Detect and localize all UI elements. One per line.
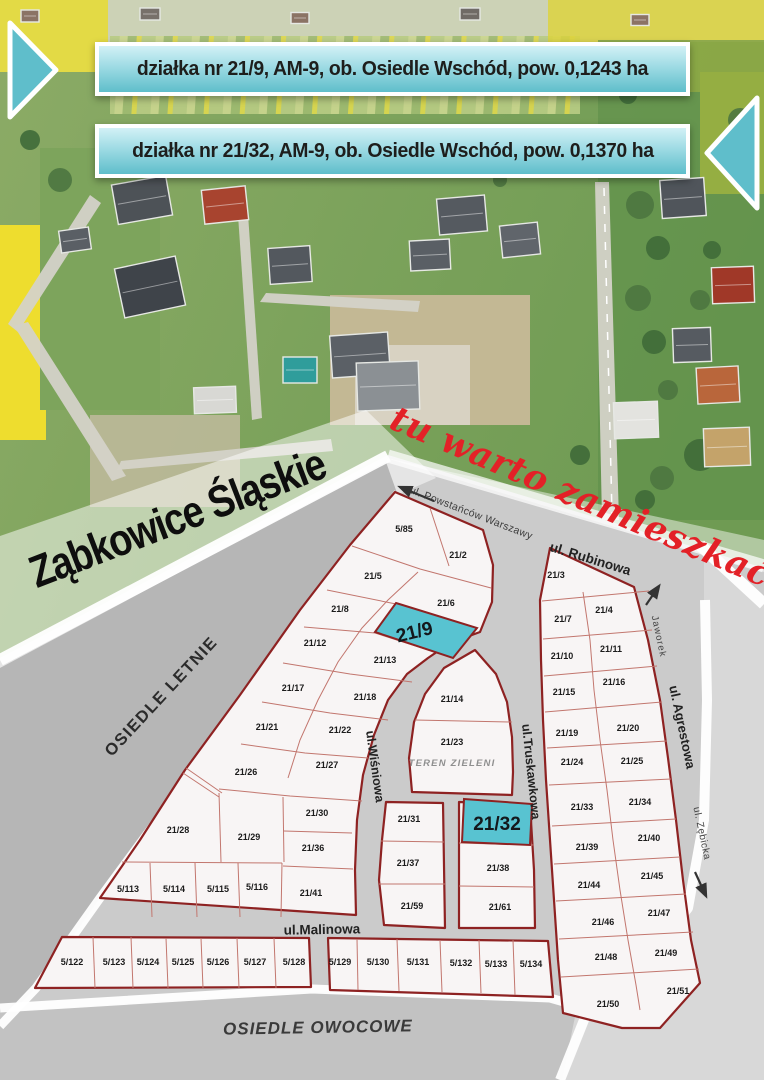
area-label: OSIEDLE OWOCOWE [223,1016,413,1038]
parcel-label: 21/44 [578,880,601,890]
parcel-label: 21/10 [551,651,574,661]
parcel-label: 21/45 [641,871,664,881]
parcel-label: 5/116 [246,882,268,892]
tree [642,330,666,354]
banner-parcel-21-32: działka nr 21/32, AM-9, ob. Osiedle Wsch… [95,124,690,178]
parcel-label: 21/23 [441,737,464,747]
parcel-label: 5/127 [244,957,267,967]
house [499,222,540,258]
parcel-label: 5/126 [207,957,230,967]
tree [646,236,670,260]
parcel-label: 21/46 [592,917,615,927]
parcel-label: 5/115 [207,884,229,894]
banner-parcel-21-9: działka nr 21/9, AM-9, ob. Osiedle Wschó… [95,42,690,96]
parcel-label: 21/15 [553,687,576,697]
house [111,176,172,225]
parcel-label: 21/24 [561,757,584,767]
parcel-label: 21/13 [374,655,397,665]
tree [690,290,710,310]
parcel-label: 21/16 [603,677,626,687]
area-label: TEREN ZIELENI [409,758,496,769]
parcel-label: 21/14 [441,694,464,704]
parcel-label: 21/29 [238,832,261,842]
parcel-label: 5/122 [61,957,84,967]
parcel-label: 5/131 [407,957,430,967]
parcel-label: 21/3 [547,570,565,580]
banner-parcel-21-9-label: działka nr 21/9, AM-9, ob. Osiedle Wschó… [137,58,648,81]
parcel-label: 5/134 [520,959,543,969]
house [711,266,754,303]
parcel-label: 21/30 [306,808,329,818]
parcel-label: 5/123 [103,957,126,967]
parcel-label: 5/130 [367,957,390,967]
parcel-label: 5/113 [117,884,139,894]
parcel-label: 21/40 [638,833,661,843]
parcel-label: 5/114 [163,884,185,894]
parcel-label: 21/41 [300,888,323,898]
parcel-label: 5/129 [329,957,352,967]
tree [625,285,651,311]
house [631,15,649,26]
parcel-label: 21/37 [397,858,420,868]
house [268,246,312,285]
house [201,186,248,224]
parcel-label: 21/17 [282,683,305,693]
house [21,10,39,22]
parcel-label: 21/61 [489,902,512,912]
tree [703,241,721,259]
parcel-label: 21/27 [316,760,339,770]
house [696,366,740,404]
house [660,178,707,219]
parcel-label: 21/39 [576,842,599,852]
tree [626,191,654,219]
parcel-label: 21/47 [648,908,671,918]
parcel-label: 21/19 [556,728,579,738]
parcel-label: 21/48 [595,952,618,962]
parcel-label: 21/34 [629,797,652,807]
house [59,227,92,253]
parcel-label: 5/133 [485,959,508,969]
house [437,195,488,235]
parcel-label: 21/36 [302,843,325,853]
tree [20,130,40,150]
parcel-label: 21/25 [621,756,644,766]
parcel-label: 21/38 [487,863,510,873]
parcel-label: 21/18 [354,692,377,702]
parcel-label: 21/20 [617,723,640,733]
parcel-label: 21/31 [398,814,421,824]
house [703,427,750,467]
parcel-label: 21/33 [571,802,594,812]
street-label: ul.Malinowa [284,921,361,937]
house [672,327,711,362]
parcel-label: 5/85 [395,524,413,534]
parcel-label: 21/50 [597,999,620,1009]
house [283,357,317,383]
tree [48,168,72,192]
parcel-label: 21/4 [595,605,613,615]
parcel-label: 21/12 [304,638,327,648]
parcel-label: 21/21 [256,722,279,732]
parcel-label: 5/128 [283,957,306,967]
tree [658,380,678,400]
parcel-label: 21/8 [331,604,349,614]
house [291,13,309,24]
house [460,8,480,20]
tree [650,466,674,490]
parcel-label: 21/51 [667,986,690,996]
tree [570,445,590,465]
parcel-label: 5/132 [450,958,473,968]
parcel-label: 21/22 [329,725,352,735]
parcel-label: 21/59 [401,901,424,911]
house [140,8,160,20]
parcel-label: 5/125 [172,957,195,967]
parcel-label: 21/2 [449,550,467,560]
house [194,386,237,413]
house [613,401,658,439]
parcel-label: 21/26 [235,767,258,777]
parcel-label: 21/11 [600,644,622,654]
parcel-label: 21/28 [167,825,190,835]
house [409,239,451,271]
parcel-label: 21/49 [655,948,678,958]
banner-parcel-21-32-label: działka nr 21/32, AM-9, ob. Osiedle Wsch… [132,140,654,163]
parcel-label: 5/124 [137,957,160,967]
parcel-label: 21/5 [364,571,382,581]
highlighted-parcel-label: 21/32 [473,814,521,835]
parcel-label: 21/7 [554,614,572,624]
parcel-label: 21/6 [437,598,455,608]
